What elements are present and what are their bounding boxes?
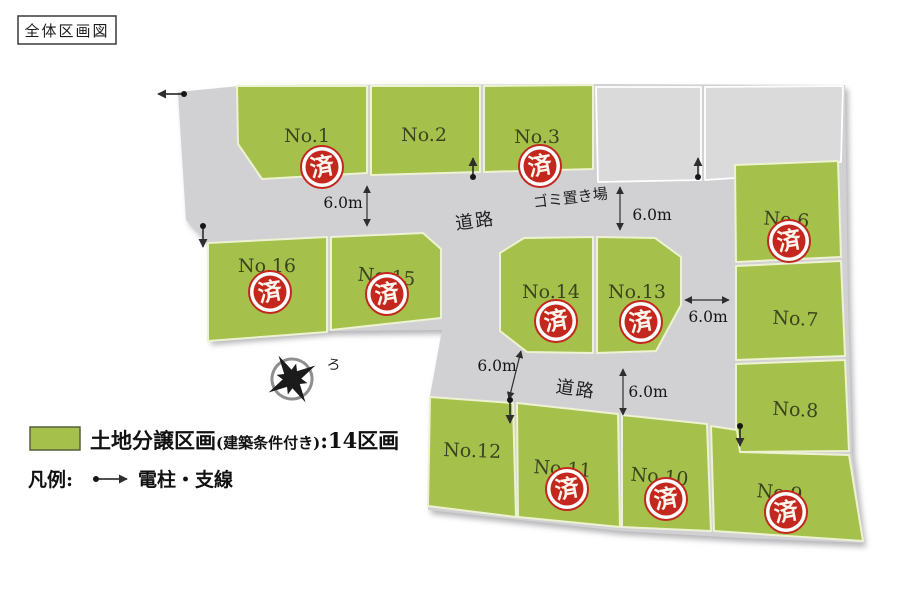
compass-north-mark: ろ bbox=[325, 356, 342, 374]
sold-stamp-no13: 済 bbox=[620, 301, 662, 343]
sold-stamp-no14: 済 bbox=[535, 300, 577, 342]
sold-stamp-no6: 済 bbox=[768, 220, 810, 262]
legend-zone-text: 土地分譲区画(建築条件付き):14区画 bbox=[90, 428, 399, 453]
lot-no12-label: No.12 bbox=[443, 439, 502, 463]
legend-pole-label: 電柱・支線 bbox=[138, 468, 233, 491]
sold-stamp-no3: 済 bbox=[519, 145, 561, 187]
dim-label-1: 6.0m bbox=[323, 194, 363, 212]
sold-stamp-no16: 済 bbox=[249, 271, 291, 313]
sold-stamp-no10: 済 bbox=[645, 478, 687, 520]
dim-label-4: 6.0m bbox=[477, 357, 517, 375]
sold-stamp-no1: 済 bbox=[301, 146, 343, 188]
lot-no7-label: No.7 bbox=[772, 307, 819, 331]
lot-no8-label: No.8 bbox=[772, 398, 819, 422]
dim-label-3: 6.0m bbox=[688, 308, 728, 326]
reserved-parcel-1 bbox=[596, 87, 701, 182]
sold-stamp-no11: 済 bbox=[546, 468, 588, 510]
legend-pole-symbol-icon bbox=[93, 476, 127, 482]
plan-map: 全体区画図 No.1 No.2 No.3 No.6 No.7 No.8 No.9… bbox=[0, 0, 900, 605]
legend-green-swatch bbox=[30, 427, 80, 450]
dim-label-2: 6.0m bbox=[632, 206, 672, 224]
legend: 土地分譲区画(建築条件付き):14区画 凡例: 電柱・支線 bbox=[28, 427, 399, 491]
title-box: 全体区画図 bbox=[18, 16, 116, 44]
lot-no2-label: No.2 bbox=[401, 124, 447, 146]
pole-symbol-1 bbox=[158, 91, 187, 97]
lot-no13-label: No.13 bbox=[608, 281, 666, 303]
lot-no1-label: No.1 bbox=[284, 125, 330, 147]
legend-key-label: 凡例: bbox=[28, 468, 73, 491]
page-title: 全体区画図 bbox=[24, 22, 109, 40]
sold-stamp-no9: 済 bbox=[765, 491, 807, 533]
compass-rose-icon bbox=[245, 332, 339, 426]
dim-label-5: 6.0m bbox=[628, 383, 668, 401]
sold-stamp-no15: 済 bbox=[366, 273, 408, 315]
